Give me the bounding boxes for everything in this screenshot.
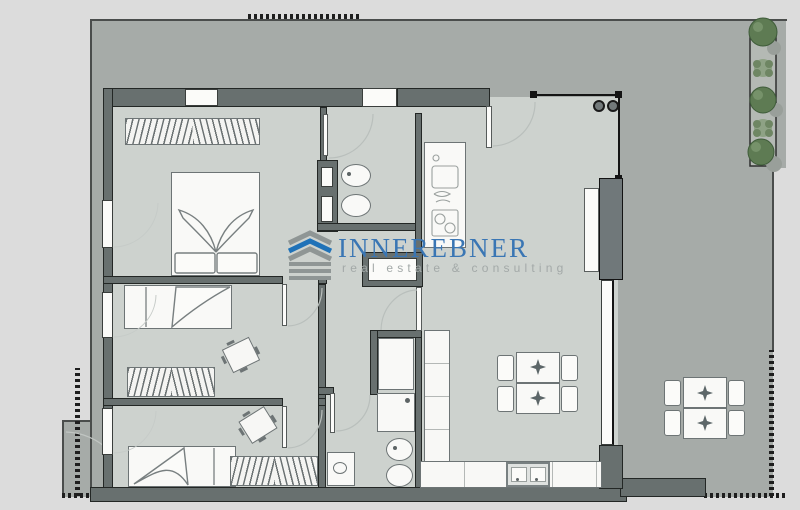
round-tree — [748, 139, 774, 165]
plumbing-niche — [321, 167, 333, 187]
kitchen-sink — [506, 462, 550, 487]
wall-bath2-jog — [370, 330, 378, 395]
window-bedroom1-top — [185, 89, 218, 106]
terrace-step-wall — [620, 478, 706, 497]
bedroom2-door-arc — [287, 286, 323, 328]
french-window-arc-b1 — [113, 201, 160, 248]
bath2-closet — [378, 338, 414, 390]
window-bedroom1-left — [102, 200, 113, 248]
toilet — [341, 164, 371, 187]
wall-bottom — [90, 487, 627, 502]
fence-hatch-right — [769, 350, 774, 496]
outdoor-chair — [664, 380, 681, 406]
window-bedroom2-left — [102, 292, 113, 338]
logo-icon — [286, 229, 334, 281]
property-boundary-left — [90, 19, 92, 497]
brand-tagline: real estate & consulting — [342, 261, 568, 275]
toilet2-flush-dot — [393, 446, 397, 450]
table-star — [697, 385, 713, 401]
sliding-door-leaf — [584, 188, 599, 272]
french-window-arc-b3 — [113, 409, 158, 454]
toilet-2 — [386, 438, 413, 461]
bath1-door-arc — [328, 112, 374, 160]
double-bed-linen — [171, 172, 260, 276]
wardrobe-bedroom2 — [127, 367, 215, 397]
ceiling-spot — [593, 100, 605, 112]
palm-plant — [753, 119, 773, 137]
kitchen-counter-side — [424, 330, 450, 463]
toilet-flush-dot — [347, 172, 351, 176]
wall-bedroom2-bottom — [103, 398, 283, 406]
outdoor-chair — [728, 380, 745, 406]
pillow — [217, 253, 257, 273]
table-star — [697, 415, 713, 431]
window-bedroom3-left — [102, 408, 113, 455]
wall-right-bottom-corner — [599, 445, 623, 489]
shower-head-dot — [405, 398, 410, 403]
fence-hatch-top — [248, 14, 362, 19]
outdoor-chair — [728, 410, 745, 436]
fence-hatch-bottom-right — [704, 493, 787, 498]
french-window-arc-b2 — [113, 293, 158, 338]
outdoor-chair — [664, 410, 681, 436]
wall-stub — [318, 398, 326, 406]
wall-panel-right — [599, 178, 623, 280]
glass-post — [530, 91, 537, 98]
pillow — [175, 253, 215, 273]
dining-chair — [561, 386, 578, 412]
plumbing-niche — [321, 196, 333, 222]
dining-chair — [497, 355, 514, 381]
dining-chair — [561, 355, 578, 381]
wall-bedroom1-bottom — [103, 276, 283, 284]
glass-wall-top — [534, 94, 620, 96]
palm-plant — [753, 59, 773, 77]
table-star — [530, 390, 546, 406]
bedroom3-door-arc — [287, 408, 323, 450]
property-boundary-top — [90, 19, 787, 21]
outdoor-table-divider — [683, 407, 727, 409]
window-top-middle — [362, 88, 397, 107]
round-tree — [749, 18, 777, 46]
table-star — [530, 359, 546, 375]
planter-trees — [744, 6, 784, 176]
bidet-2 — [386, 464, 413, 487]
living-door-arc — [380, 288, 418, 332]
round-tree — [750, 87, 776, 113]
glass-post — [615, 91, 622, 98]
property-boundary-right — [772, 168, 774, 352]
floor-plan: INNEREBNER real estate & consulting — [0, 0, 800, 510]
ceiling-spot — [607, 100, 619, 112]
bidet — [341, 194, 371, 217]
wardrobe-bedroom3 — [230, 456, 318, 486]
dining-table-divider — [516, 382, 560, 384]
sliding-glass-window — [601, 280, 614, 445]
entrance-door-arc — [492, 100, 536, 148]
bath2-door-arc — [335, 393, 371, 433]
wardrobe-master — [125, 118, 260, 145]
washbasin-bowl — [333, 462, 347, 474]
dining-chair — [497, 386, 514, 412]
brand-name: INNEREBNER — [338, 233, 529, 264]
wall-top-b — [397, 88, 490, 107]
wall-top-a — [103, 88, 364, 107]
